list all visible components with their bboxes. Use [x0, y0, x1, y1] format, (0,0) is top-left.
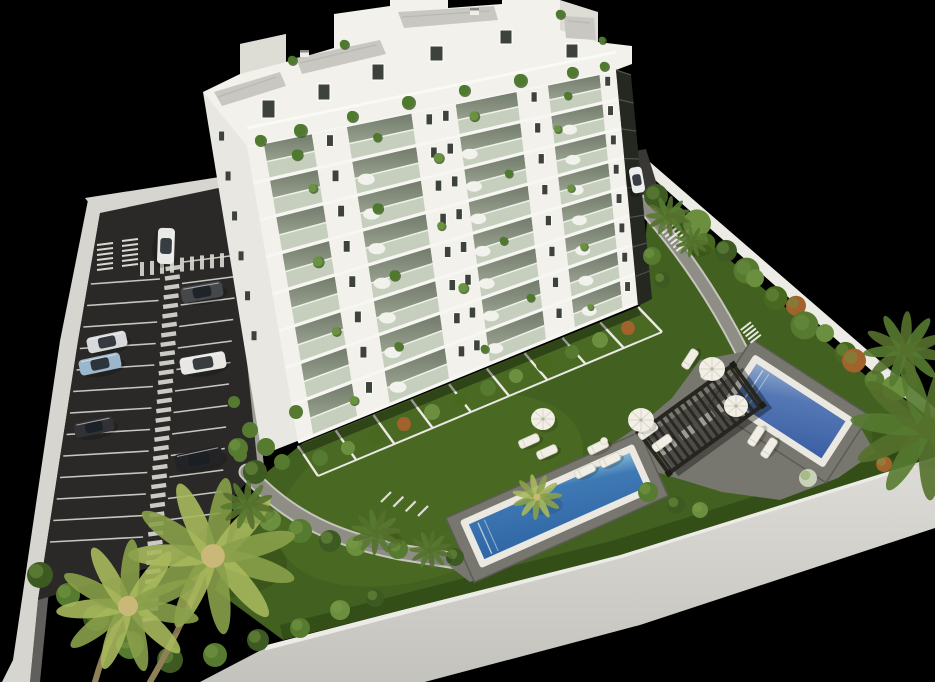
penthouse-window	[430, 46, 443, 61]
facade-window	[556, 308, 562, 318]
facade-window	[608, 106, 614, 116]
hedge-bush-highlight	[766, 288, 779, 301]
facade-window	[531, 92, 537, 102]
curved-balcony-front	[475, 246, 491, 257]
balcony-plant	[554, 125, 561, 132]
facade-window	[611, 135, 617, 145]
shrub-highlight	[290, 521, 303, 534]
shrub-highlight	[668, 497, 678, 507]
shrub-highlight	[245, 462, 258, 475]
side-window	[239, 251, 244, 260]
garden-bush	[289, 405, 303, 419]
balcony-plant	[434, 153, 443, 162]
shrub-highlight	[29, 564, 43, 578]
facade-window	[452, 176, 458, 187]
facade-window	[465, 274, 471, 285]
balcony-plant	[292, 149, 302, 159]
terrace-plant	[402, 96, 414, 108]
facade-window	[613, 164, 619, 174]
garden-bush	[341, 441, 355, 455]
curved-balcony-front	[578, 276, 593, 286]
balcony-plant	[587, 304, 593, 310]
shrub-highlight	[230, 440, 241, 451]
garden-bush	[274, 454, 290, 470]
facade-window	[332, 170, 339, 181]
shrub-highlight	[644, 248, 654, 258]
curved-balcony-front	[487, 343, 503, 354]
crosswalk-stripe	[220, 253, 224, 267]
facade-window	[616, 194, 622, 204]
balcony-plant	[481, 345, 489, 353]
garden-bush	[424, 404, 440, 420]
facade-window	[355, 311, 362, 322]
parasol-pole	[639, 418, 642, 421]
balcony-plant	[394, 342, 402, 350]
facade-window	[622, 252, 628, 262]
crosswalk-stripe	[180, 258, 184, 272]
garden-bush	[565, 345, 579, 359]
roof-chimney-top	[300, 50, 309, 53]
roof-gravel-panel	[564, 16, 596, 40]
side-window	[252, 331, 257, 340]
curved-balcony-front	[379, 312, 396, 323]
parasol-pole	[734, 404, 737, 407]
facade-window	[538, 154, 544, 164]
shrub-highlight	[205, 645, 218, 658]
side-window	[232, 211, 237, 220]
garden-bush	[453, 393, 467, 407]
terrace-plant	[288, 56, 297, 65]
shrub-highlight	[693, 503, 702, 512]
balcony-plant	[580, 243, 587, 250]
palm-crown	[201, 544, 225, 568]
palm-crown	[899, 344, 911, 356]
facade-window	[605, 76, 611, 86]
shrub-highlight	[367, 590, 377, 600]
facade-window	[549, 246, 555, 256]
facade-window	[619, 223, 625, 233]
side-table	[601, 438, 608, 445]
garden-bush	[257, 438, 275, 456]
facade-window	[535, 123, 541, 133]
terrace-plant	[514, 74, 526, 86]
hedge-bush-highlight	[646, 186, 659, 199]
garden-bush	[312, 450, 328, 466]
curved-balcony-front	[483, 311, 499, 322]
shrub-highlight	[321, 532, 333, 544]
crosswalk-stripe	[200, 255, 204, 269]
curved-balcony-front	[374, 278, 391, 289]
balcony-plant	[332, 327, 340, 335]
facade-window	[545, 216, 551, 226]
curved-balcony-front	[565, 155, 580, 165]
terrace-plant	[255, 135, 265, 145]
palm-crown	[373, 529, 380, 536]
balcony-plant	[505, 170, 512, 177]
shrub-highlight	[249, 631, 261, 643]
curved-balcony-front	[358, 174, 375, 185]
crosswalk-stripe	[140, 262, 144, 276]
garden-bush	[368, 428, 384, 444]
hedge-bush-highlight	[794, 315, 809, 330]
roof-chimney-top	[470, 8, 479, 11]
garden-bush	[397, 417, 411, 431]
hedge-bush-highlight	[747, 270, 757, 280]
terrace-plant	[340, 40, 349, 49]
garden-bush	[480, 380, 496, 396]
facade-window	[349, 276, 356, 287]
terrace-plant	[600, 62, 609, 71]
terrace-plant	[556, 10, 565, 19]
facade-window	[553, 277, 559, 287]
crosswalk-stripe	[190, 257, 194, 271]
shrub-highlight	[655, 273, 664, 282]
side-window	[245, 291, 250, 300]
penthouse-window	[566, 44, 578, 58]
side-window	[226, 171, 231, 180]
balcony-plant	[389, 270, 399, 280]
facade-window	[445, 247, 451, 258]
shrub-highlight	[332, 602, 343, 613]
crosswalk-stripe	[150, 261, 154, 275]
penthouse-window	[372, 64, 384, 80]
curved-balcony-front	[466, 181, 482, 192]
balcony-plant	[527, 294, 534, 301]
penthouse-window	[262, 100, 275, 118]
curved-balcony-front	[368, 243, 385, 254]
facade-window	[542, 185, 548, 195]
curved-balcony-front	[562, 125, 577, 135]
palm-crown	[118, 596, 138, 616]
terrace-plant	[599, 37, 606, 44]
facade-window	[625, 282, 631, 292]
balcony-plant	[350, 396, 358, 404]
palm-crown	[243, 501, 251, 509]
shrub-highlight	[292, 620, 303, 631]
facade-window	[447, 143, 453, 154]
palm-crown	[665, 213, 671, 219]
facade-window	[426, 114, 432, 125]
hedge-bush-highlight	[788, 297, 799, 308]
parasol-pole	[541, 417, 544, 420]
facade-window	[360, 346, 367, 357]
garden-bush	[592, 332, 608, 348]
facade-window	[327, 135, 334, 146]
balcony-plant	[564, 92, 571, 99]
crosswalk-stripe	[210, 254, 214, 268]
facade-window	[456, 209, 462, 220]
garden-bush	[621, 321, 635, 335]
curved-balcony-front	[479, 278, 495, 289]
parasol-pole	[710, 367, 713, 370]
penthouse-window	[318, 84, 330, 100]
balcony-plant	[313, 256, 323, 266]
balcony-plant	[308, 184, 316, 192]
facade-window	[454, 313, 460, 324]
terrace-plant	[459, 85, 469, 95]
shrub-highlight	[800, 470, 810, 480]
balcony-plant	[567, 184, 574, 191]
terrace-plant	[347, 111, 357, 121]
curved-balcony-front	[390, 381, 407, 392]
facade-window	[449, 280, 455, 291]
shrub-highlight	[58, 585, 71, 598]
car-glass-roof	[160, 238, 172, 254]
side-balcony-slab	[624, 159, 639, 160]
facade-window	[343, 241, 350, 252]
hedge-bush-highlight	[817, 325, 827, 335]
balcony-plant	[458, 283, 467, 292]
hedge-bush-highlight	[844, 351, 857, 364]
shrub-highlight	[640, 484, 651, 495]
facade-window	[474, 340, 480, 351]
balcony-plant	[437, 222, 445, 230]
penthouse-window	[500, 30, 512, 44]
curved-balcony-front	[572, 215, 587, 225]
facade-window	[435, 180, 441, 191]
curved-balcony-front	[462, 149, 478, 160]
render-stage	[0, 0, 935, 682]
facade-window	[338, 205, 345, 216]
garden-bush	[228, 396, 240, 408]
facade-window	[469, 307, 475, 318]
facade-window	[458, 346, 464, 357]
balcony-plant	[373, 133, 381, 141]
balcony-plant	[469, 111, 478, 120]
facade-window	[366, 382, 373, 393]
terrace-plant	[567, 67, 577, 77]
palm-crown	[534, 494, 541, 501]
garden-bush	[536, 356, 552, 372]
hedge-bush-highlight	[717, 242, 729, 254]
terrace-plant	[294, 124, 306, 136]
palm-crown	[690, 240, 695, 245]
garden-bush	[242, 422, 258, 438]
facade-window	[460, 242, 466, 253]
balcony-plant	[373, 203, 383, 213]
architectural-render	[0, 0, 935, 682]
facade-window	[443, 110, 449, 121]
curved-balcony-front	[470, 214, 486, 225]
side-window	[219, 132, 224, 141]
balcony-plant	[500, 237, 507, 244]
garden-bush	[509, 369, 523, 383]
palm-crown	[427, 547, 433, 553]
